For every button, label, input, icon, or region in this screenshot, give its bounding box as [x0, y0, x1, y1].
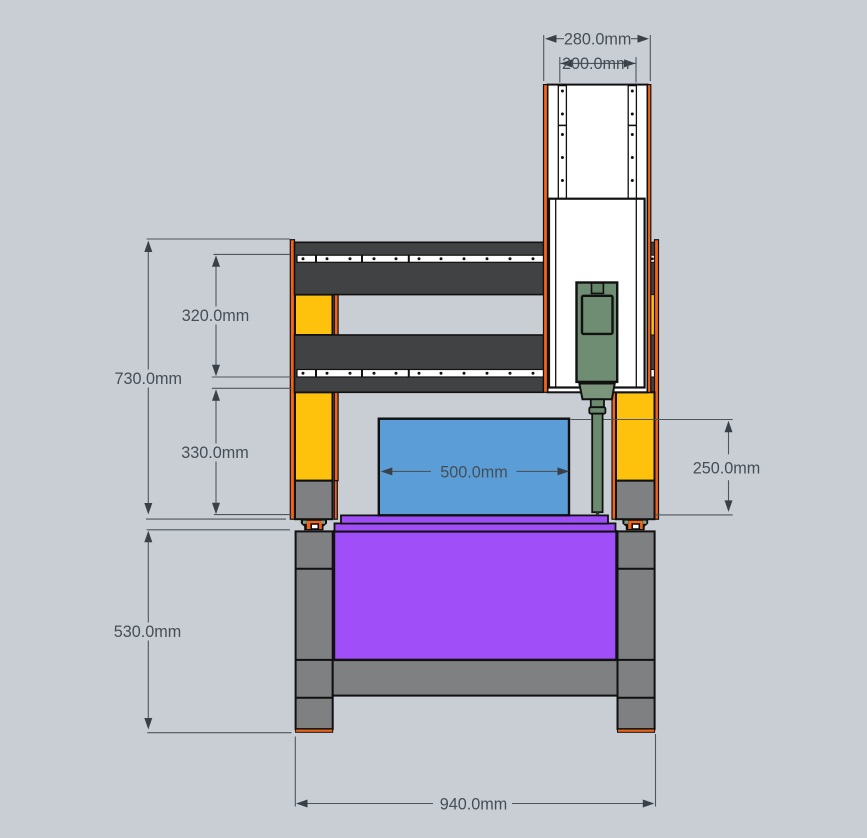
svg-text:200.0mm: 200.0mm	[562, 55, 629, 73]
svg-text:940.0mm: 940.0mm	[440, 795, 507, 813]
svg-text:280.0mm: 280.0mm	[564, 31, 631, 49]
svg-text:330.0mm: 330.0mm	[181, 444, 248, 462]
svg-text:730.0mm: 730.0mm	[115, 370, 182, 388]
svg-text:500.0mm: 500.0mm	[440, 463, 507, 481]
svg-text:320.0mm: 320.0mm	[182, 307, 249, 325]
svg-text:250.0mm: 250.0mm	[693, 460, 760, 478]
svg-text:530.0mm: 530.0mm	[114, 623, 181, 641]
